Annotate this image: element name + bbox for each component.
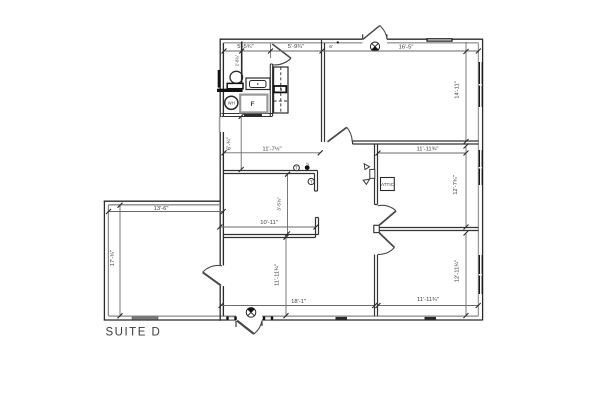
svg-text:11'-7½": 11'-7½" <box>262 146 281 153</box>
svg-text:18'-1": 18'-1" <box>291 299 306 305</box>
svg-text:11'-11¾": 11'-11¾" <box>417 297 439 303</box>
svg-text:F: F <box>251 101 255 108</box>
svg-text:13'-6": 13'-6" <box>154 206 169 212</box>
svg-text:3'-5¾": 3'-5¾" <box>277 197 283 211</box>
svg-text:10'-11": 10'-11" <box>260 220 278 226</box>
svg-text:11'-11¾": 11'-11¾" <box>275 264 281 286</box>
svg-text:2'-8¾": 2'-8¾" <box>235 54 240 66</box>
svg-text:17'-¾": 17'-¾" <box>110 250 116 266</box>
svg-text:14'-11": 14'-11" <box>455 81 461 99</box>
svg-text:T: T <box>295 166 298 171</box>
svg-text:T: T <box>310 179 313 184</box>
svg-text:12'-7¾": 12'-7¾" <box>453 175 459 195</box>
svg-text:6'-¾": 6'-¾" <box>227 137 233 150</box>
svg-text:16'-5": 16'-5" <box>399 45 414 51</box>
svg-text:WH: WH <box>228 100 235 105</box>
svg-text:5'-5¾": 5'-5¾" <box>237 44 253 50</box>
svg-text:SUITE D: SUITE D <box>106 327 162 339</box>
svg-text:6': 6' <box>329 44 333 50</box>
svg-text:11'-11¾": 11'-11¾" <box>417 147 439 153</box>
svg-text:5'-9¾": 5'-9¾" <box>288 44 304 50</box>
svg-text:12'-11¾": 12'-11¾" <box>455 260 461 282</box>
svg-text:ATTIC: ATTIC <box>381 182 395 187</box>
